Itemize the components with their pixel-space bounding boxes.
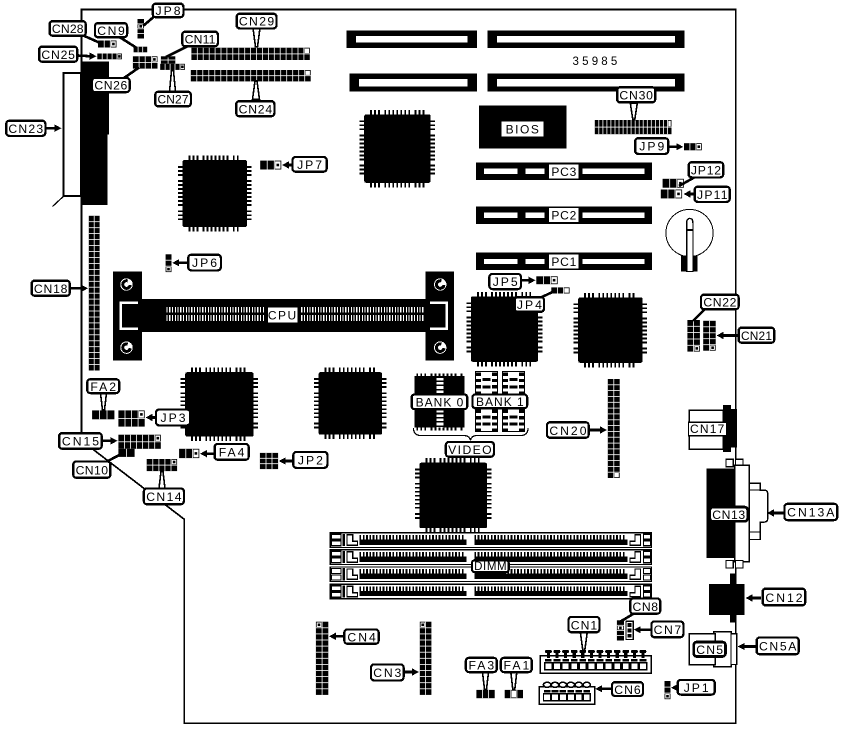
- svg-text:CN20: CN20: [549, 424, 588, 438]
- svg-text:CN11: CN11: [185, 33, 216, 47]
- svg-text:CN30: CN30: [619, 89, 653, 103]
- svg-text:JP2: JP2: [298, 454, 325, 468]
- svg-text:CN15: CN15: [62, 435, 101, 449]
- svg-text:JP7: JP7: [297, 158, 324, 172]
- svg-text:CN5A: CN5A: [759, 640, 798, 654]
- svg-text:CN18: CN18: [34, 282, 68, 296]
- svg-text:PC3: PC3: [551, 165, 577, 179]
- svg-text:CN3: CN3: [373, 666, 403, 680]
- svg-text:CN24: CN24: [239, 102, 273, 116]
- svg-text:JP8: JP8: [155, 4, 182, 18]
- svg-text:PC2: PC2: [551, 209, 577, 223]
- svg-text:CN14: CN14: [146, 490, 183, 504]
- svg-text:CN4: CN4: [347, 630, 377, 644]
- svg-text:CN25: CN25: [41, 48, 75, 62]
- svg-text:JP6: JP6: [192, 256, 219, 270]
- svg-text:PC1: PC1: [551, 255, 577, 269]
- svg-text:JP1: JP1: [684, 681, 711, 695]
- svg-text:CN13A: CN13A: [787, 506, 836, 520]
- svg-text:JP5: JP5: [493, 275, 520, 289]
- svg-text:CN5: CN5: [696, 643, 724, 657]
- svg-text:CN26: CN26: [94, 79, 128, 93]
- svg-text:BANK 0: BANK 0: [416, 396, 465, 410]
- svg-text:CN28: CN28: [52, 22, 84, 36]
- svg-text:BIOS: BIOS: [506, 122, 541, 136]
- svg-text:CN13: CN13: [712, 508, 746, 522]
- svg-text:CN1: CN1: [571, 618, 598, 632]
- svg-text:FA3: FA3: [468, 659, 496, 673]
- svg-text:FA2: FA2: [90, 380, 118, 394]
- svg-text:JP11: JP11: [697, 188, 729, 202]
- svg-text:CN6: CN6: [614, 683, 641, 697]
- svg-text:35985: 35985: [573, 56, 621, 68]
- svg-text:BANK 1: BANK 1: [476, 395, 525, 409]
- svg-text:CN17: CN17: [690, 422, 725, 436]
- svg-text:CN22: CN22: [703, 296, 737, 310]
- svg-text:CN23: CN23: [8, 122, 44, 136]
- svg-text:JP12: JP12: [691, 163, 722, 177]
- svg-text:CPU: CPU: [268, 308, 298, 322]
- svg-text:CN7: CN7: [654, 623, 683, 637]
- svg-text:CN10: CN10: [76, 463, 109, 477]
- svg-text:FA4: FA4: [219, 446, 247, 460]
- svg-text:CN9: CN9: [97, 24, 126, 38]
- svg-text:JP3: JP3: [160, 411, 187, 425]
- svg-text:JP9: JP9: [639, 140, 666, 154]
- svg-text:CN27: CN27: [157, 93, 188, 107]
- svg-text:JP4: JP4: [517, 298, 544, 312]
- svg-text:VIDEO: VIDEO: [448, 443, 493, 457]
- svg-text:CN8: CN8: [633, 600, 659, 614]
- svg-text:CN21: CN21: [741, 329, 772, 343]
- svg-text:CN12: CN12: [765, 591, 804, 605]
- svg-text:CN29: CN29: [239, 15, 276, 29]
- svg-text:DIMM: DIMM: [474, 561, 507, 573]
- svg-text:FA1: FA1: [504, 659, 532, 673]
